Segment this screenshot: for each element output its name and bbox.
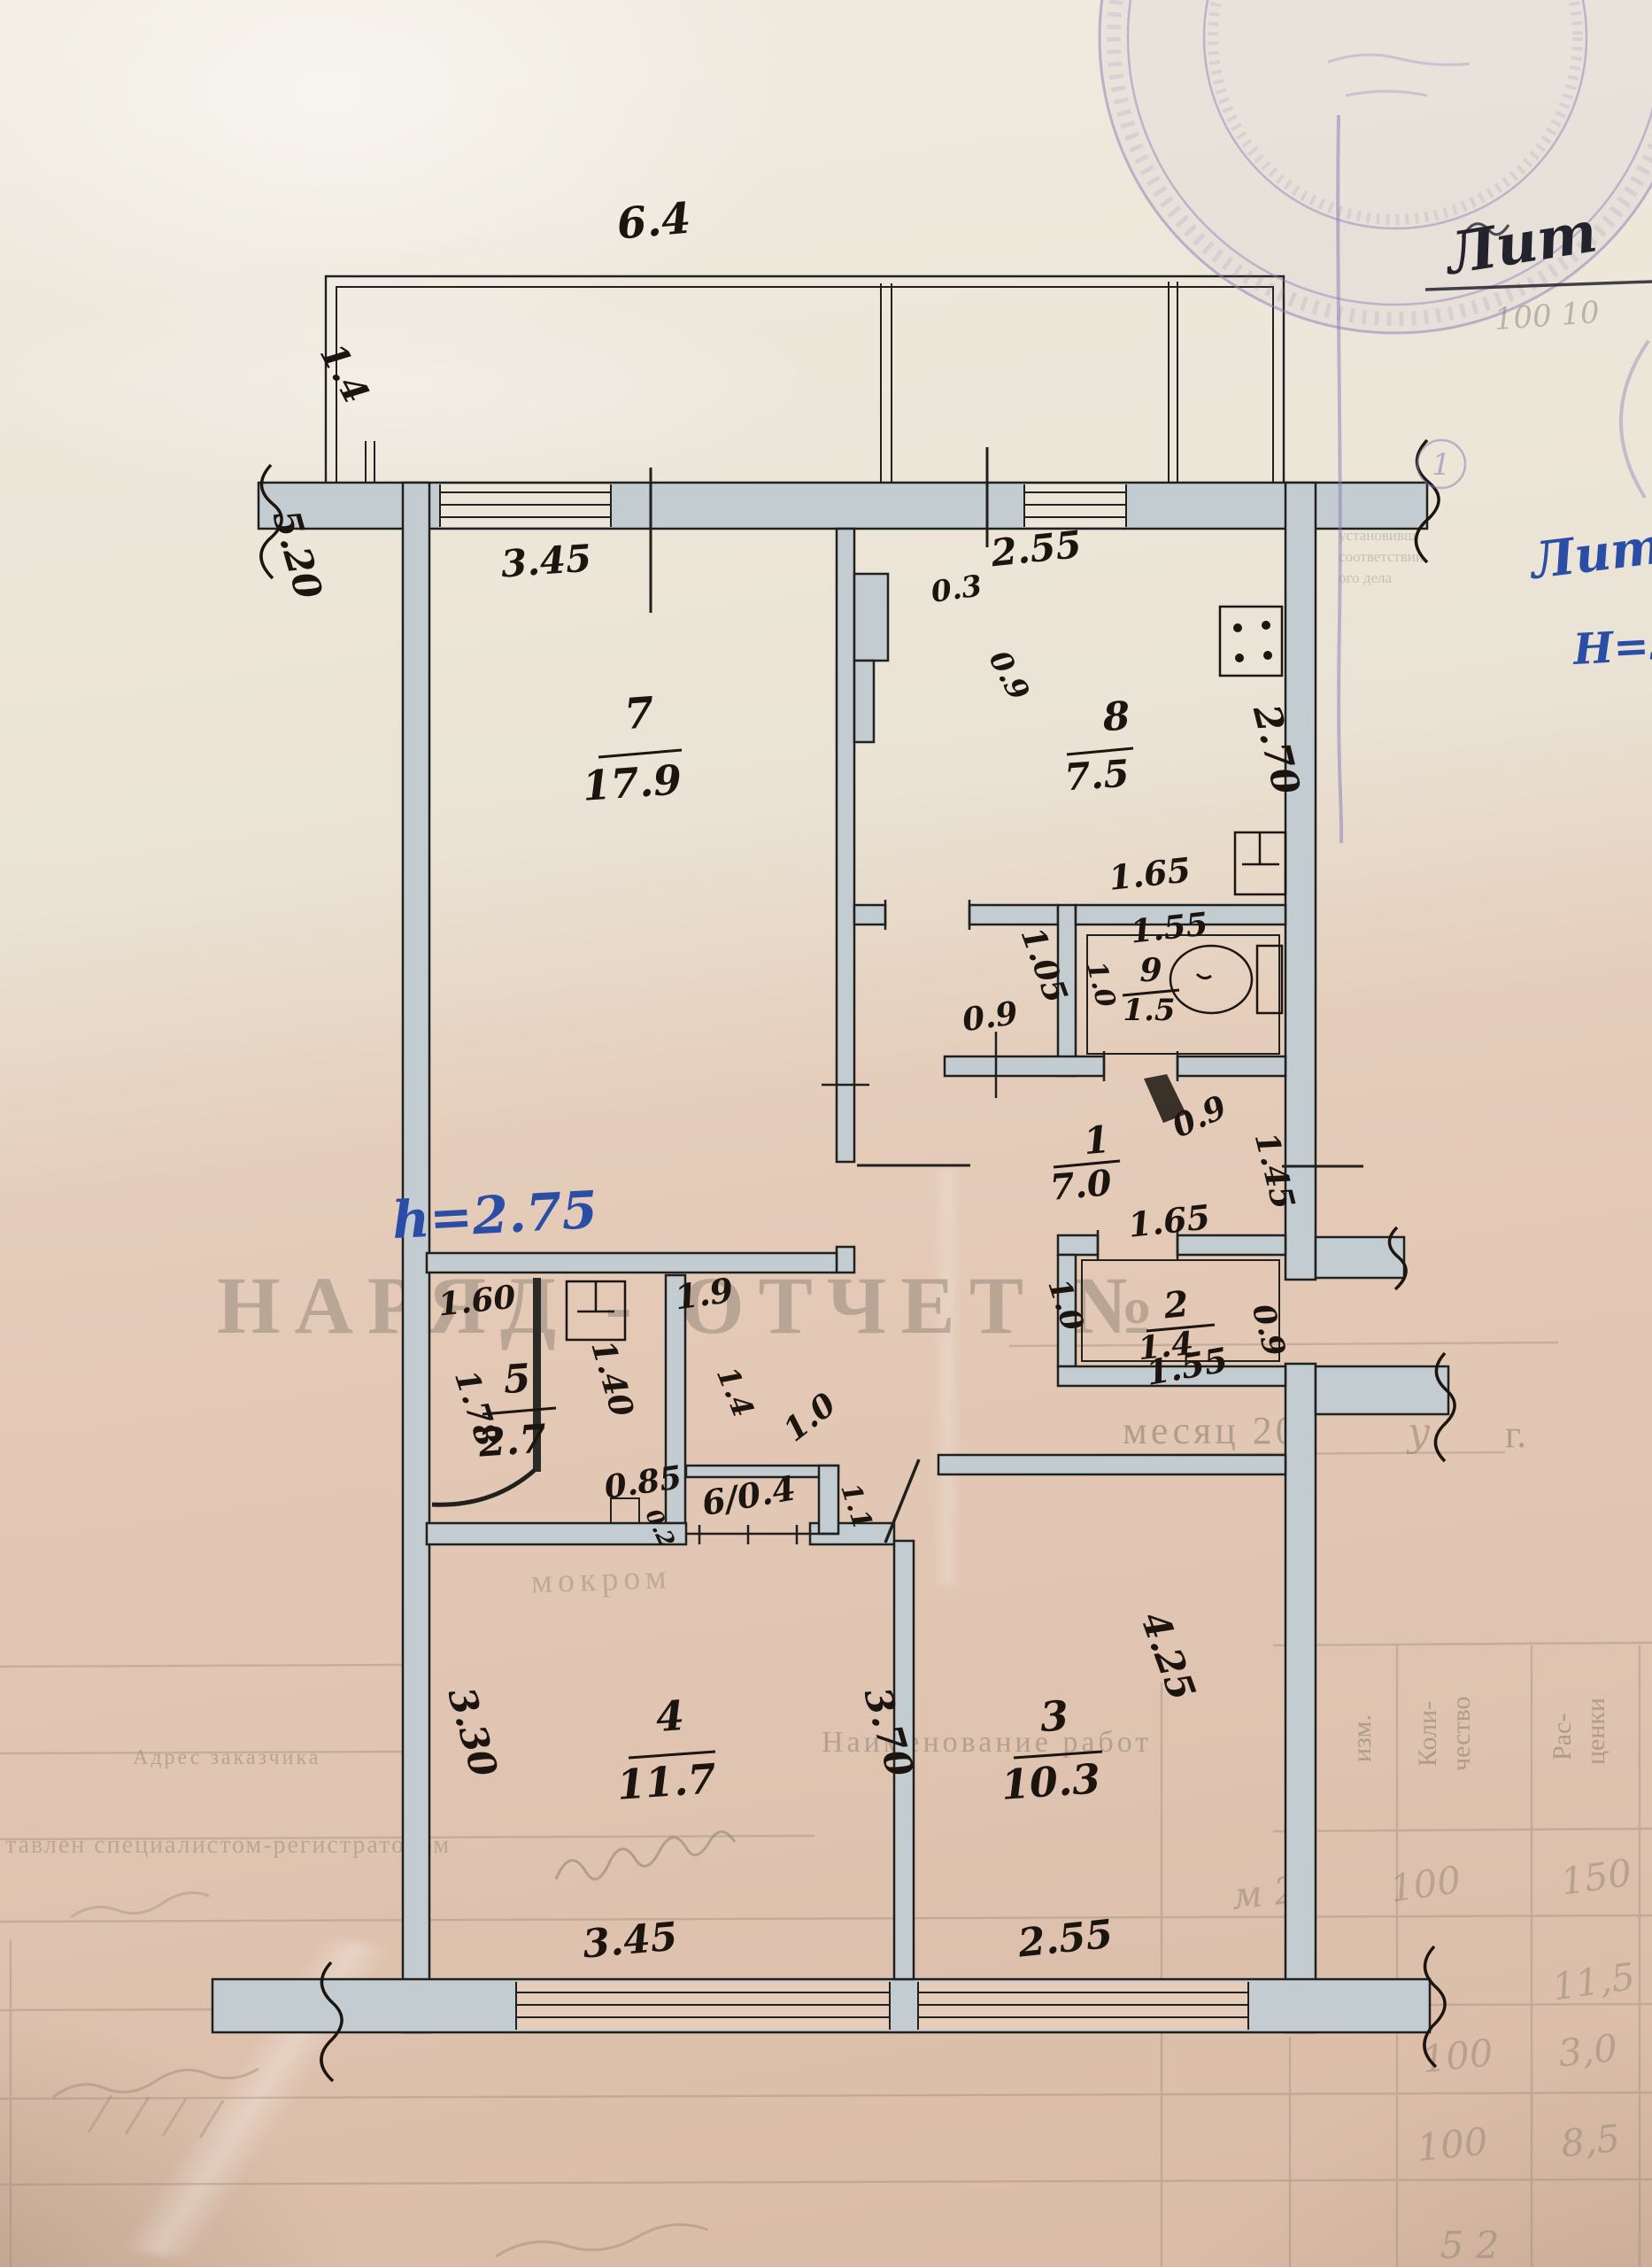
dim-niche: 0.9 [960,994,1020,1039]
pencil-cell: 100 [1420,2031,1495,2081]
wall-room7-bottom [427,1253,837,1273]
building-height-note: Н=3.00 [1571,615,1652,675]
illegible-line: ого дела [1339,569,1392,586]
photographed-floorplan-page: НАРЯД - ОТЧЕТ № месяц 200 г. у мокром На… [0,0,1652,2267]
room7-area: 17.9 [581,755,683,810]
handwritten-mark: у [1406,1410,1431,1455]
sink-icon [1235,832,1285,894]
dim-room3-height: 4.25 [1132,1606,1204,1706]
scribble [71,1892,209,1917]
room4-area: 11.7 [615,1754,718,1809]
stub-wall [1316,1366,1448,1414]
wall-kitchen-bottom [969,905,1058,925]
pencil-cell: 3,0 [1556,2026,1620,2076]
scribble [53,2069,259,2097]
round-stamp-icon: 1 [1100,0,1652,843]
dim-hall-width: 1.9 [672,1270,736,1318]
pencil-cell: 11,5 [1549,1954,1637,2009]
pencil-cell: 100 [1415,2119,1490,2170]
pencil-cell: 150 [1558,1851,1634,1904]
dim-bath-outer: 1.65 [1107,849,1193,897]
right-wall-lower [1285,1364,1316,2032]
pencil-scribbles [53,965,735,2256]
dim-bath-left2: 1.0 [1080,958,1122,1010]
room1-number: 1 [1082,1118,1111,1163]
window [516,1982,890,2030]
wall-bath-bottom [1177,1056,1285,1076]
wall-room7-right [837,1247,854,1273]
stove-icon [1220,607,1282,676]
room9-number: 9 [1139,952,1162,989]
bleed-col-unit: изм. [1347,1714,1377,1762]
dim-vent-depth: 0.3 [929,568,984,609]
bleed-specialist-line: тавлен специалистом-регистратором [5,1831,451,1859]
stamp-number: 1 [1432,447,1451,483]
bleed-word: мокром [530,1559,672,1601]
door-leaf-icon [885,1459,919,1543]
ceiling-height-note: h=2.75 [390,1180,598,1250]
room8-area: 7.5 [1063,752,1131,800]
dim-room4-height: 3.30 [439,1683,506,1782]
pencil-number-note: 100 10 [1493,295,1600,337]
dim-room3-width: 2.55 [1015,1912,1115,1967]
dim-bath-width: 1.55 [1129,906,1210,951]
room9-area: 1.5 [1123,993,1175,1028]
dim-wc-right: 0.9 [1245,1300,1293,1359]
room2-number: 2 [1161,1283,1191,1327]
pencil-cell: 8,5 [1559,2116,1623,2166]
wall-wc-top [1058,1235,1098,1255]
scribble [496,2224,708,2256]
left-wall [403,483,429,2032]
dim-wc-outer: 1.65 [1126,1196,1212,1244]
liter-note-blue: Лит [1525,516,1652,591]
dim-balcony-width: 6.4 [615,194,693,250]
dim-closet-side: 1.4 [710,1362,761,1422]
pencil-cell: 100 [1387,1858,1463,1911]
toilet-icon [1170,946,1282,1013]
signature-scribble [556,1831,735,1879]
wall-wc-top [1177,1235,1285,1255]
scribble [89,2095,223,2138]
vent-shaft [854,574,888,661]
wall-kitchen-bottom [854,905,885,925]
bleed-col-address: Адрес заказчика [133,1746,320,1769]
room3-number: 3 [1038,1691,1070,1741]
wardrobe-arc [432,1470,535,1505]
dim-room8-width: 2.55 [988,522,1084,576]
room7-number: 7 [622,688,655,739]
dim-closet-height: 1.78 [447,1366,506,1451]
bleed-col-rate1: Рас- [1548,1714,1577,1760]
wall-room6-right [819,1466,838,1534]
bleed-col-qty2: чество [1447,1696,1476,1771]
dim-balcony-depth: 1.4 [312,337,377,411]
window [440,484,611,527]
dim-room4-width: 3.45 [581,1914,679,1967]
window [918,1982,1248,2030]
pencil-cell: 5 2 [1440,2224,1500,2267]
room1-area: 7.0 [1048,1162,1114,1209]
illegible-line: соответствии [1339,548,1424,565]
dim-vent-height: 0.9 [982,645,1036,706]
room3-area: 10.3 [1000,1754,1102,1809]
dim-hall-door: 1.0 [776,1386,843,1450]
bleed-col-rate2: ценки [1581,1698,1610,1765]
room8-number: 8 [1100,693,1131,740]
room5-number: 5 [502,1356,532,1403]
wall-room7-right [837,529,854,1162]
floorplan-svg: НАРЯД - ОТЧЕТ № месяц 200 г. у мокром На… [0,0,1652,2267]
dim-room7-width: 3.45 [499,537,592,586]
room4-number: 4 [654,1691,686,1741]
bleed-year: г. [1505,1412,1526,1456]
top-wall [259,483,1427,529]
wall-room3-top [938,1455,1285,1474]
wall-bath-bottom [945,1056,1104,1076]
window [1024,484,1126,527]
vent-shaft [854,661,874,742]
bleed-col-qty1: Коли- [1413,1701,1442,1767]
balcony-outline [326,276,1284,483]
